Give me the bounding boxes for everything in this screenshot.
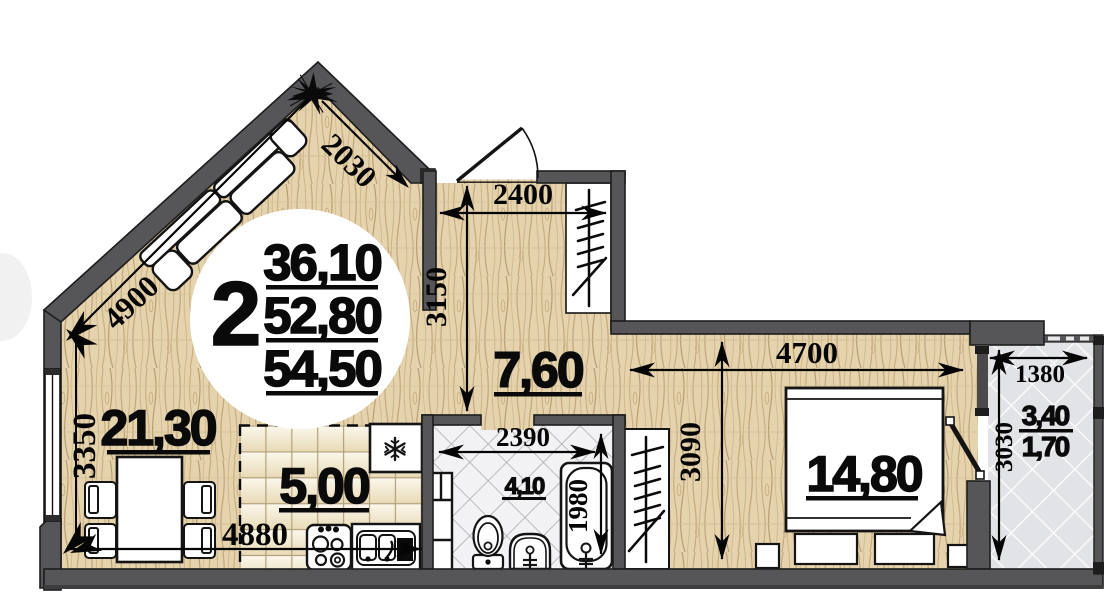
svg-text:36,10: 36,10: [263, 234, 381, 291]
svg-text:3,40: 3,40: [1022, 400, 1070, 431]
svg-text:3350: 3350: [67, 413, 103, 479]
svg-text:4700: 4700: [776, 335, 838, 370]
svg-text:4880: 4880: [222, 517, 288, 553]
svg-text:1980: 1980: [563, 479, 593, 533]
svg-text:54,50: 54,50: [263, 340, 381, 397]
svg-text:2: 2: [211, 264, 260, 365]
svg-text:2390: 2390: [496, 422, 550, 452]
svg-text:4,10: 4,10: [505, 473, 545, 500]
svg-text:3150: 3150: [420, 267, 453, 327]
svg-text:52,80: 52,80: [263, 287, 381, 344]
svg-text:5,00: 5,00: [279, 458, 369, 514]
svg-text:21,30: 21,30: [100, 400, 215, 456]
svg-text:3090: 3090: [674, 422, 707, 482]
svg-text:7,60: 7,60: [493, 342, 583, 398]
svg-text:14,80: 14,80: [806, 446, 921, 502]
svg-text:3030: 3030: [991, 422, 1018, 472]
svg-text:1380: 1380: [1015, 361, 1065, 388]
svg-text:2400: 2400: [493, 178, 553, 211]
svg-text:1,70: 1,70: [1022, 431, 1070, 462]
